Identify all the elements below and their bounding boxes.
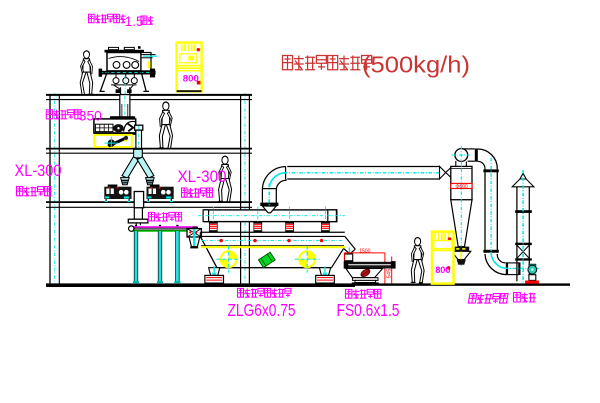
svg-text:ZLG6x0.75: ZLG6x0.75 [228,300,296,320]
svg-text:545: 545 [387,269,393,279]
svg-text:1500: 1500 [359,249,370,255]
svg-text:XL-300: XL-300 [178,167,227,186]
svg-text:350: 350 [79,109,102,124]
svg-text:800: 800 [183,73,199,84]
svg-text:FS0.6x1.5: FS0.6x1.5 [337,300,400,320]
svg-text:XL-300: XL-300 [15,161,62,180]
svg-text:(500kg/h): (500kg/h) [362,52,470,78]
